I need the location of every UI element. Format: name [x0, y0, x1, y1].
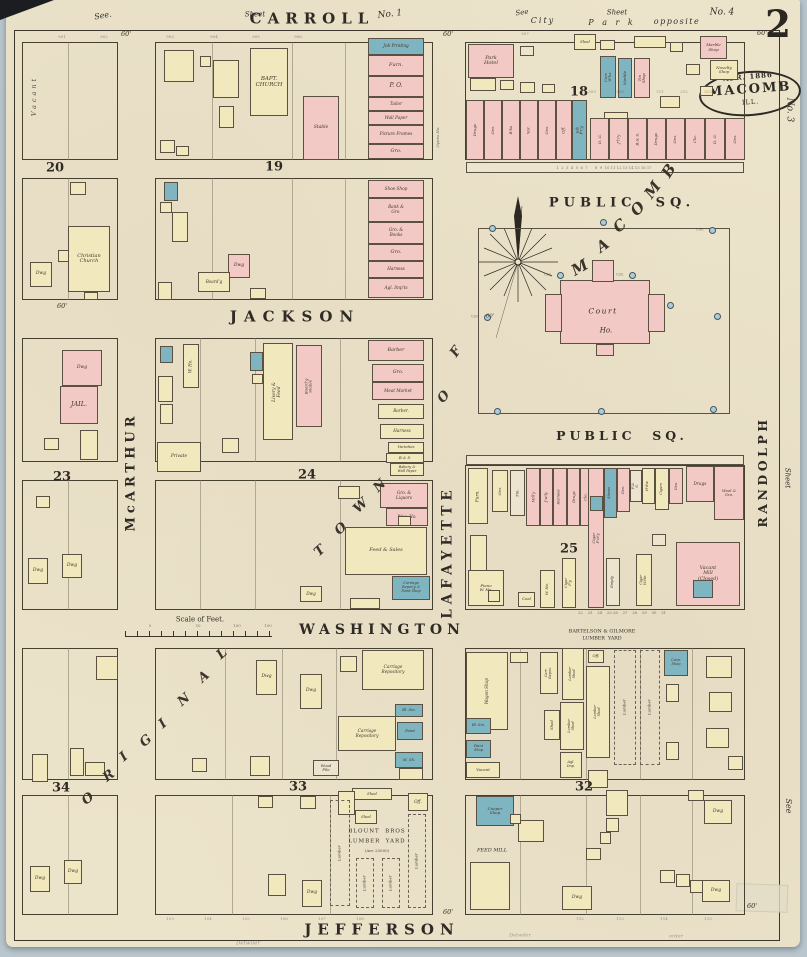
building-footprint	[300, 796, 316, 809]
building-footprint	[670, 42, 683, 52]
building-footprint	[44, 438, 59, 450]
lot-division-line	[340, 480, 341, 610]
building-footprint	[500, 80, 514, 90]
building-label: W. Ho.	[545, 583, 549, 595]
building-footprint: Bl. Sm.	[395, 704, 423, 717]
building-footprint: Gro.	[492, 470, 508, 512]
building-footprint	[158, 282, 172, 300]
lot-division-line	[292, 42, 293, 160]
building-label: Wool & Gro.	[722, 489, 736, 497]
building-footprint: H'dw.	[642, 468, 655, 504]
building-label: JAIL.	[71, 401, 87, 408]
building-label: M. Sh.	[403, 758, 416, 762]
building-footprint: Gro.	[538, 100, 556, 160]
building-label: Bank & Gro.	[388, 205, 404, 214]
building-footprint	[70, 748, 84, 776]
block-number-18: 18	[570, 86, 588, 99]
building-footprint: Dwg	[704, 800, 732, 824]
map-annotation: 105	[242, 917, 250, 921]
map-annotation: 60'	[57, 303, 67, 310]
block-number-33: 33	[289, 781, 307, 794]
building-label: Wood Pile	[321, 764, 332, 772]
building-footprint	[192, 758, 207, 772]
map-annotation: opposite	[654, 18, 701, 26]
building-footprint	[488, 590, 500, 602]
building-footprint: Cigar F'y	[562, 558, 576, 608]
map-annotation: 903	[166, 35, 174, 39]
building-label: Agl. Imp'ts	[385, 286, 408, 291]
building-label: Shed	[550, 720, 554, 730]
building-footprint: Carriage Repository	[362, 650, 424, 690]
building-footprint: Bank & Gro.	[368, 198, 424, 222]
building-footprint: Mill'y	[526, 468, 540, 526]
building-footprint: Paint	[397, 722, 423, 740]
building-label: Dwg	[77, 366, 87, 371]
map-annotation: 50	[195, 624, 200, 628]
map-annotation: Detwiler	[509, 934, 531, 939]
building-footprint	[164, 182, 178, 201]
building-label: Harness	[558, 489, 562, 504]
building-footprint	[600, 40, 615, 50]
building-label: Agl. Imp.	[567, 761, 575, 769]
building-footprint: Christian Church	[68, 226, 110, 292]
building-label: Dwg	[68, 870, 78, 875]
building-footprint: Dwg	[300, 674, 322, 709]
building-footprint: Dwg	[62, 350, 102, 386]
building-footprint	[213, 60, 239, 98]
building-footprint: Park Hotel	[468, 44, 514, 78]
map-annotation: Court	[588, 307, 617, 315]
building-footprint	[160, 404, 173, 424]
building-footprint	[32, 754, 48, 782]
cistern-marker	[714, 313, 721, 320]
building-footprint	[586, 848, 601, 860]
building-footprint: Shed	[355, 810, 377, 824]
building-footprint	[652, 534, 666, 546]
building-label: Tin.	[515, 489, 519, 497]
building-footprint	[222, 438, 239, 453]
map-annotation: 902	[100, 35, 108, 39]
building-label: Drugs	[654, 133, 658, 145]
building-footprint	[160, 346, 173, 363]
building-footprint: Carp. Shop	[664, 650, 688, 676]
map-annotation: Cist.	[696, 228, 704, 232]
cistern-marker	[494, 408, 501, 415]
building-label: Shed	[367, 792, 377, 796]
building-label: Bakery & Wall Paper	[397, 466, 416, 474]
building-footprint: Drugs	[686, 466, 714, 502]
lot-division-line	[345, 42, 346, 160]
building-footprint: Lumber Shed	[586, 666, 610, 758]
building-footprint: Novelty Shop	[710, 60, 738, 80]
building-label: Gro.	[621, 486, 625, 494]
building-footprint: Stoves	[604, 468, 617, 518]
building-label: Gro.	[673, 135, 677, 144]
building-label: Lumber	[338, 845, 342, 861]
building-label: Christian Church	[77, 254, 100, 265]
building-footprint: Wool & Gro.	[714, 466, 744, 520]
building-footprint: Agl. Imp'ts	[368, 278, 424, 298]
map-annotation: 150	[264, 624, 272, 628]
building-label: Gro.	[674, 482, 678, 490]
building-footprint	[634, 36, 666, 48]
map-annotation: LUMBER YARD	[348, 839, 405, 845]
building-label: D. G.	[597, 134, 601, 144]
map-annotation: Cist.	[471, 315, 479, 319]
building-footprint: Gro.	[617, 468, 630, 512]
map-annotation: See	[784, 799, 792, 814]
building-label: D. G.	[713, 134, 717, 144]
building-footprint	[36, 496, 50, 508]
building-label: Shed	[361, 815, 371, 819]
lot-division-line	[292, 178, 293, 300]
building-label: Cigars	[660, 483, 664, 495]
building-label: W. Ho.	[189, 359, 194, 373]
building-footprint: Cigar W.Ho.	[636, 554, 652, 606]
building-label: Dwg	[234, 264, 244, 269]
building-footprint	[258, 796, 273, 808]
building-label: Lumber Shed	[568, 715, 576, 737]
scale-bar	[125, 631, 272, 637]
building-label: Off.	[414, 800, 422, 805]
building-label: P. O.	[389, 83, 402, 90]
map-annotation: 311	[656, 90, 664, 94]
building-label: Tailor	[390, 102, 402, 107]
building-label: Dwg	[35, 877, 45, 882]
map-annotation: 906	[294, 35, 302, 39]
map-annotation: 313	[704, 90, 712, 94]
lot-division-line	[282, 648, 283, 780]
building-label: Gro.	[733, 135, 737, 144]
building-footprint: Furn.	[468, 468, 488, 524]
city-block-outline	[22, 795, 118, 915]
building-footprint: Clo.	[685, 118, 705, 160]
building-footprint: Dwg	[228, 254, 250, 278]
building-label: Harness	[387, 267, 405, 272]
building-label: Novelty Shop	[716, 66, 732, 75]
building-footprint: Bakery & Wall Paper	[390, 463, 424, 476]
map-annotation: order	[669, 935, 683, 940]
cistern-marker	[489, 225, 496, 232]
building-footprint	[706, 656, 732, 678]
building-footprint: Off.	[556, 100, 572, 160]
building-footprint	[520, 82, 535, 93]
map-annotation: 60'	[757, 30, 767, 37]
building-footprint: B.& S.	[386, 453, 424, 463]
street-name-public-sq-: PUBLIC SQ.	[556, 430, 688, 443]
building-footprint: Shed	[544, 710, 560, 740]
map-annotation: Ho.	[600, 328, 612, 335]
street-name-jackson: JACKSON	[230, 310, 360, 325]
building-label: Gro. & Books	[389, 228, 403, 237]
map-annotation: See.	[94, 11, 113, 22]
building-footprint: M. Sh.	[395, 752, 423, 768]
building-label: Lumber	[389, 875, 393, 891]
building-footprint	[706, 728, 729, 748]
building-label: Dwg	[713, 810, 723, 815]
building-label: Gro.	[491, 126, 495, 135]
building-label: F.& S.	[632, 481, 640, 491]
building-footprint: Barber.	[378, 404, 424, 419]
building-footprint	[600, 832, 611, 844]
building-label: Furn.	[476, 490, 481, 502]
building-footprint: W. Ho.	[183, 344, 199, 388]
building-footprint: Livery & Feed	[263, 343, 293, 440]
building-footprint	[518, 820, 544, 842]
map-annotation: 22 23 24 25 26 27 28 29 30 31	[578, 611, 666, 615]
block-number-19: 19	[265, 161, 283, 174]
building-footprint	[398, 516, 411, 526]
cistern-marker	[557, 272, 564, 279]
block-number-32: 32	[575, 781, 593, 794]
building-footprint	[648, 294, 665, 332]
building-footprint: Lumber	[408, 814, 426, 908]
building-label: Gro.	[391, 149, 402, 155]
building-footprint: Carr. Repos.	[540, 652, 558, 694]
building-label: Job P't'g	[575, 124, 583, 137]
building-footprint	[350, 598, 380, 609]
building-label: B'ks	[509, 126, 513, 135]
building-footprint: Wall Paper	[368, 111, 424, 125]
building-footprint: Harness	[380, 424, 424, 439]
building-footprint: Lumber Shed	[562, 648, 584, 700]
building-footprint	[176, 146, 189, 156]
map-annotation: Sheet	[784, 468, 791, 488]
map-annotation: Cist.	[544, 273, 552, 277]
building-label: J'w'ly	[544, 492, 548, 502]
building-footprint: Lumber Shed	[560, 702, 584, 750]
building-footprint: Gro. & Books	[368, 222, 424, 244]
building-label: B.& S.	[635, 133, 639, 146]
building-label: Carriage Repos'y & Paint Shop	[401, 582, 420, 594]
building-label: Coal	[522, 597, 531, 601]
building-footprint: Off.	[588, 650, 604, 663]
cistern-marker	[667, 302, 674, 309]
map-annotation: 60'	[747, 903, 757, 910]
building-footprint: P. O.	[368, 76, 424, 97]
block-number-34: 34	[52, 782, 70, 795]
building-footprint: Job Printing	[368, 38, 424, 55]
building-label: Mill'y	[531, 492, 535, 503]
building-footprint	[666, 742, 679, 760]
building-footprint: Dwg	[62, 554, 82, 578]
building-label: Vacant	[476, 768, 490, 772]
building-label: Empty	[611, 576, 615, 588]
street-name-randolph: RANDOLPH	[757, 416, 770, 527]
map-annotation: Opera Ho.	[436, 127, 440, 148]
building-footprint	[693, 580, 713, 598]
map-annotation: 107	[318, 917, 326, 921]
building-footprint	[252, 374, 263, 384]
building-footprint	[728, 756, 743, 770]
building-label: Carp. Shop	[671, 659, 681, 667]
building-footprint: Picture Frames	[368, 125, 424, 144]
building-footprint: Harness	[553, 468, 567, 526]
building-label: Varieties	[398, 445, 415, 449]
map-annotation: City	[531, 17, 555, 25]
map-annotation: 905	[252, 35, 260, 39]
building-label: J'l'ry	[616, 134, 620, 143]
building-footprint	[596, 344, 614, 356]
lot-division-line	[232, 795, 233, 915]
map-annotation: 901	[58, 35, 66, 39]
map-annotation: Cist.	[616, 273, 624, 277]
building-footprint	[338, 486, 360, 499]
building-footprint: Meat Market	[372, 382, 424, 400]
building-label: Board'g	[206, 280, 223, 285]
map-annotation: 114	[660, 917, 668, 921]
building-label: H'dw.	[647, 481, 651, 491]
building-footprint	[470, 78, 496, 91]
building-footprint	[686, 64, 700, 75]
building-label: Off.	[562, 126, 566, 133]
building-label: Lumber	[363, 875, 367, 891]
building-footprint: Board'g Stable	[296, 345, 322, 427]
map-annotation: 310	[616, 90, 624, 94]
building-footprint: Dwg	[562, 886, 592, 910]
building-label: Lumber Shed	[594, 701, 602, 723]
building-label: Wall Paper	[385, 116, 408, 121]
block-number-24: 24	[298, 469, 316, 482]
building-footprint: Feed & Sales	[345, 527, 427, 575]
building-footprint: B.& S.	[628, 118, 647, 160]
building-footprint: Carriage Repository	[338, 716, 396, 751]
building-footprint: Dwg	[64, 860, 82, 884]
building-footprint	[590, 496, 603, 511]
building-footprint: Board'g	[198, 272, 230, 292]
map-annotation: 60'	[121, 31, 131, 38]
building-label: Gro.	[391, 250, 402, 256]
building-label: Meat Market	[384, 389, 412, 394]
lot-division-line	[68, 648, 69, 780]
building-footprint: Drugs	[567, 468, 580, 526]
street-name-carroll: CARROLL	[250, 12, 375, 27]
building-footprint	[200, 56, 211, 67]
map-annotation: 307	[521, 32, 529, 36]
building-footprint	[160, 140, 175, 153]
building-footprint	[172, 212, 188, 242]
building-footprint: Bl. Sm.	[466, 718, 491, 734]
lot-division-line	[68, 42, 69, 160]
lot-division-line	[692, 795, 693, 915]
building-footprint: Cigar F'ct'y	[588, 468, 604, 608]
building-footprint	[606, 790, 628, 816]
building-footprint	[688, 790, 704, 801]
map-annotation: FEED MILL	[477, 849, 507, 854]
building-label: Dwg	[711, 889, 721, 894]
building-label: Dwg	[306, 592, 316, 597]
building-footprint: Gro.	[725, 118, 745, 160]
building-footprint: Agl. Imp.	[560, 752, 582, 778]
lot-division-line	[200, 480, 201, 610]
building-label: Var.	[527, 126, 531, 134]
building-footprint	[250, 756, 270, 776]
building-footprint	[164, 50, 194, 82]
building-footprint: Dwg	[256, 660, 277, 695]
building-label: Stable	[314, 126, 329, 131]
building-footprint: D. G.	[590, 118, 609, 160]
map-annotation: 60'	[443, 909, 453, 916]
lot-division-line	[692, 648, 693, 780]
lot-division-line	[345, 178, 346, 300]
building-footprint: Var.	[520, 100, 538, 160]
building-label: Cigar F'y	[565, 577, 573, 589]
map-annotation: 112	[576, 917, 584, 921]
building-label: Paint	[405, 729, 415, 733]
building-label: Gro.	[498, 487, 502, 496]
building-label: Stoves	[609, 487, 613, 499]
map-annotation: 60'	[486, 314, 495, 320]
building-footprint: Vacant	[466, 762, 500, 778]
building-footprint: Varieties	[388, 442, 424, 453]
cistern-marker	[709, 227, 716, 234]
building-footprint	[470, 862, 510, 910]
building-label: Shed	[580, 40, 590, 44]
lot-division-line	[520, 648, 521, 780]
map-annotation: 103	[166, 917, 174, 921]
building-label: Lumber	[623, 700, 627, 716]
map-annotation: P a r k	[588, 19, 635, 27]
map-annotation: 115	[704, 917, 712, 921]
building-footprint: Barber	[368, 340, 424, 361]
building-label: Carriage Repository	[382, 665, 405, 674]
building-footprint: Harness	[368, 261, 424, 278]
building-footprint: JAIL.	[60, 386, 98, 424]
building-footprint: Furn.	[368, 55, 424, 76]
building-footprint: BAPT. CHURCH	[250, 48, 288, 116]
building-label: Off.	[592, 654, 599, 658]
building-label: Barber	[388, 348, 405, 353]
building-footprint	[660, 870, 675, 883]
building-label: Board'g Stable	[305, 374, 314, 398]
cistern-marker	[629, 272, 636, 279]
map-annotation: 104	[204, 917, 212, 921]
building-footprint	[268, 874, 286, 896]
building-footprint	[80, 430, 98, 460]
building-footprint: Cooper Shop	[476, 796, 514, 826]
cistern-marker	[710, 406, 717, 413]
building-footprint	[219, 106, 234, 128]
building-label: Job Printing	[383, 44, 408, 49]
building-footprint: Lumber	[330, 800, 350, 906]
building-footprint: Dwg	[30, 866, 50, 892]
building-label: Dwg	[36, 272, 46, 277]
building-label: Drugs	[571, 491, 575, 503]
building-footprint	[158, 376, 173, 402]
building-label: Clo.	[693, 135, 697, 143]
building-footprint	[676, 874, 690, 887]
building-footprint: W. Ho.	[540, 570, 555, 608]
building-label: Gro. & Liquors	[396, 491, 412, 500]
building-footprint: Dwg	[28, 558, 48, 584]
building-footprint: Tin Shop	[634, 58, 650, 98]
building-footprint: Lumber	[640, 650, 660, 765]
building-footprint: D. G.	[705, 118, 725, 160]
building-footprint: Dwg	[300, 586, 322, 602]
building-label: Livery & Feed	[273, 378, 283, 406]
map-annotation: LUMBER YARD	[582, 638, 621, 643]
building-label: BAPT. CHURCH	[256, 76, 283, 88]
building-footprint: Drugs	[647, 118, 666, 160]
building-footprint: Gro.	[368, 144, 424, 159]
building-footprint: Cigars	[655, 468, 669, 510]
map-annotation: BLOUNT BROS	[348, 829, 405, 835]
map-annotation: (Ave 25000)	[365, 849, 389, 853]
building-footprint: Dwg	[30, 262, 52, 287]
building-label: Bl. Sm.	[402, 708, 416, 712]
building-footprint	[520, 46, 534, 56]
building-footprint: Shed	[352, 788, 392, 800]
